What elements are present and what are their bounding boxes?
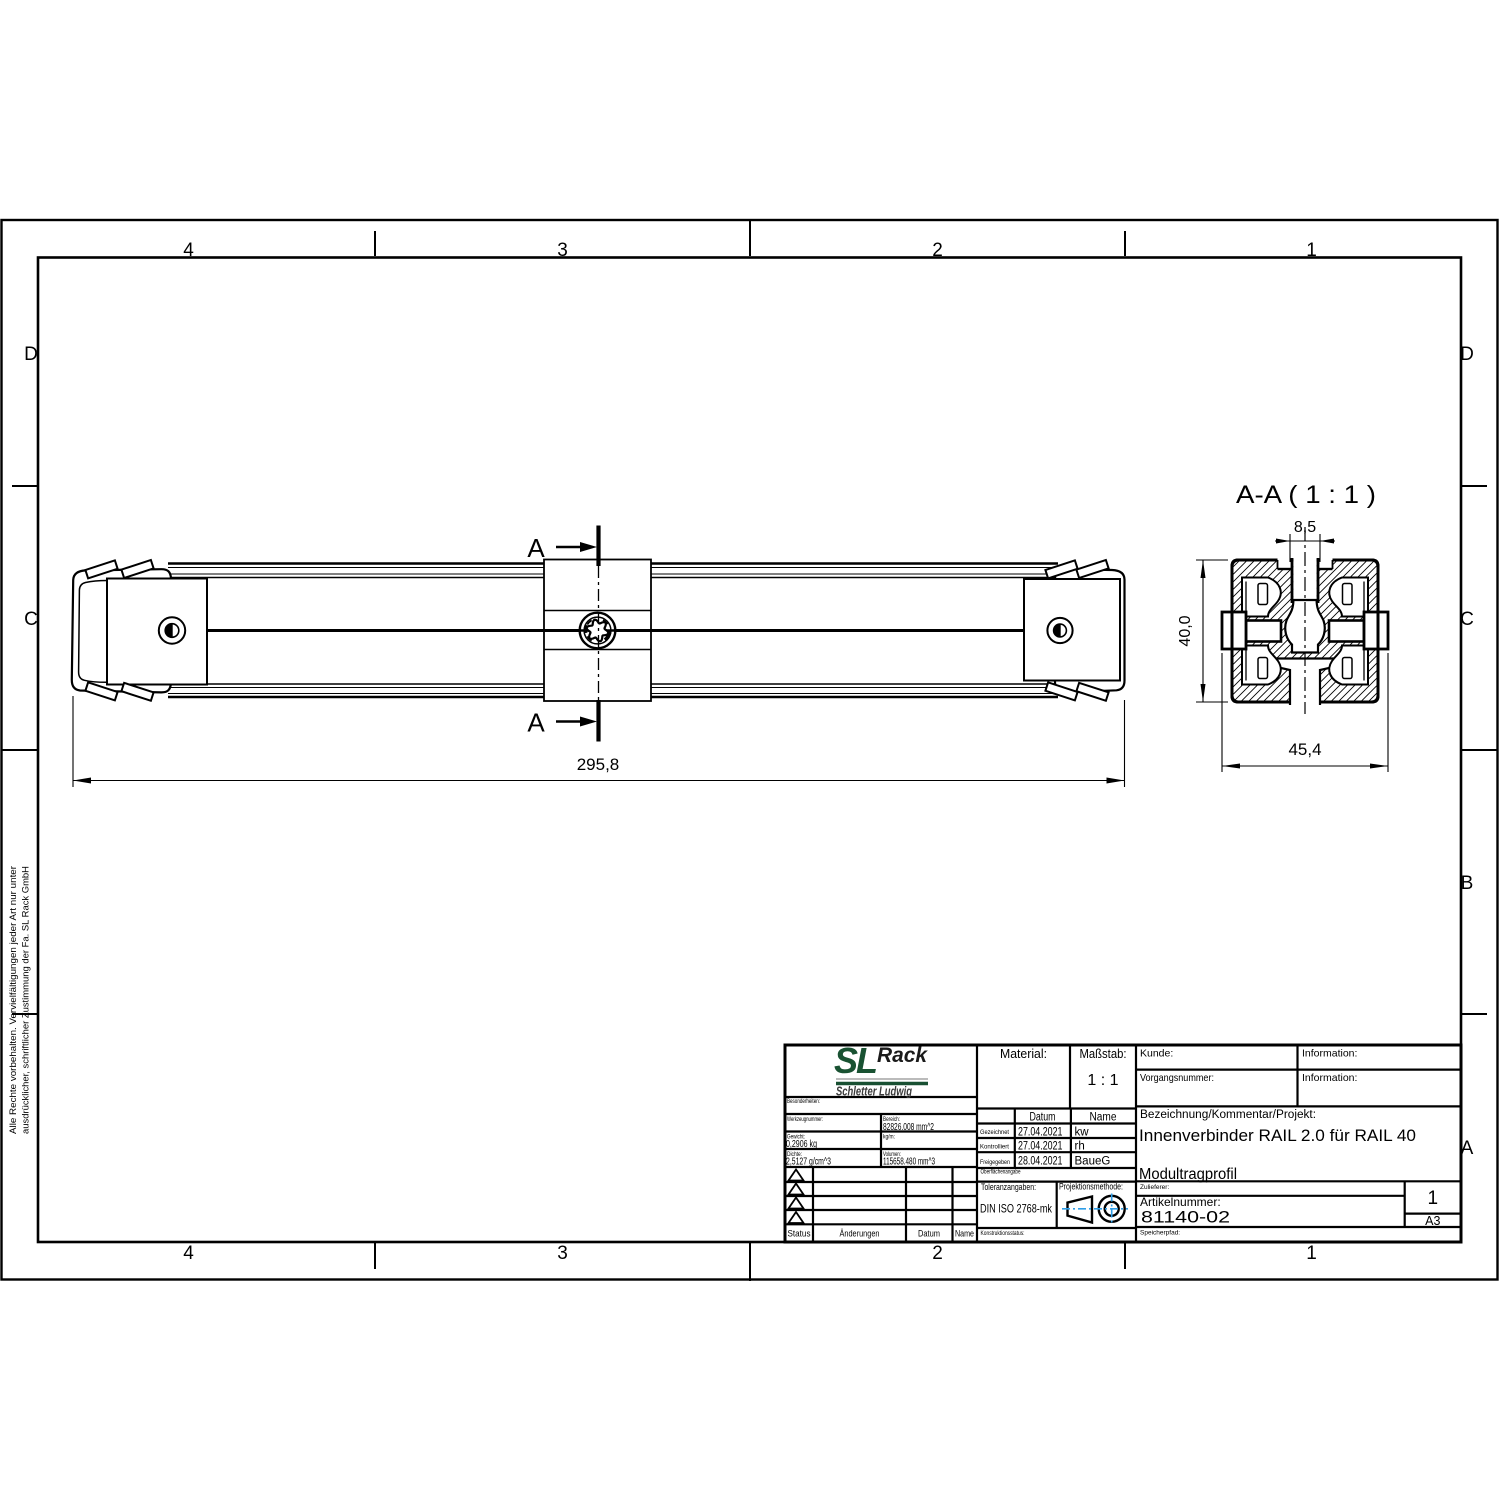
svg-text:Werkzeugnummer:: Werkzeugnummer: <box>787 1116 823 1123</box>
svg-text:27.04.2021: 27.04.2021 <box>1018 1127 1063 1139</box>
svg-text:Freigegeben: Freigegeben <box>980 1159 1010 1166</box>
svg-text:1 : 1: 1 : 1 <box>1087 1072 1118 1089</box>
svg-text:DIN ISO 2768-mk: DIN ISO 2768-mk <box>980 1202 1053 1216</box>
svg-text:3: 3 <box>557 1243 568 1264</box>
svg-text:Speicherpfad:: Speicherpfad: <box>1140 1230 1180 1237</box>
svg-text:2: 2 <box>932 1243 943 1264</box>
svg-text:Oberflächenangabe: Oberflächenangabe <box>981 1169 1021 1176</box>
svg-text:Toleranzangaben:: Toleranzangaben: <box>981 1182 1036 1193</box>
svg-text:4: 4 <box>183 1243 194 1264</box>
svg-text:0,2906 kg: 0,2906 kg <box>786 1139 817 1150</box>
svg-text:Name: Name <box>1090 1112 1117 1124</box>
svg-text:Bezeichnung/Kommentar/Projekt:: Bezeichnung/Kommentar/Projekt: <box>1140 1109 1316 1121</box>
svg-text:2,5127 g/cm^3: 2,5127 g/cm^3 <box>786 1157 831 1168</box>
svg-text:Maßstab:: Maßstab: <box>1080 1047 1127 1061</box>
svg-text:ausdrücklicher, schriftlicher: ausdrücklicher, schriftlicher Zustimmung… <box>21 866 32 1134</box>
svg-text:rh: rh <box>1075 1141 1085 1153</box>
svg-text:BaueG: BaueG <box>1075 1156 1111 1168</box>
svg-text:Besonderheiten:: Besonderheiten: <box>787 1098 820 1105</box>
svg-text:Projektionsmethode:: Projektionsmethode: <box>1059 1182 1123 1192</box>
svg-text:Datum: Datum <box>918 1229 940 1240</box>
svg-text:C: C <box>1460 609 1474 630</box>
svg-text:Schletter Ludwig: Schletter Ludwig <box>836 1084 912 1099</box>
svg-text:A: A <box>527 708 545 738</box>
svg-text:Rack: Rack <box>877 1044 928 1067</box>
svg-text:40,0: 40,0 <box>1177 615 1194 646</box>
svg-text:kg/m:: kg/m: <box>883 1134 895 1141</box>
svg-text:D: D <box>24 344 38 365</box>
svg-text:SL: SL <box>834 1040 876 1081</box>
svg-text:A-A ( 1 : 1 ): A-A ( 1 : 1 ) <box>1236 481 1376 509</box>
svg-text:A3: A3 <box>1425 1214 1440 1228</box>
svg-text:1: 1 <box>1306 1243 1317 1264</box>
svg-text:C: C <box>24 609 38 630</box>
svg-text:45,4: 45,4 <box>1288 740 1321 759</box>
svg-text:A: A <box>527 533 545 563</box>
svg-text:82826.008 mm^2: 82826.008 mm^2 <box>883 1122 934 1133</box>
svg-text:3: 3 <box>557 240 568 261</box>
svg-text:A: A <box>1461 1138 1474 1159</box>
svg-text:28.04.2021: 28.04.2021 <box>1018 1156 1063 1168</box>
svg-text:8,5: 8,5 <box>1294 519 1316 536</box>
svg-text:115658.480 mm^3: 115658.480 mm^3 <box>883 1157 935 1168</box>
svg-text:D: D <box>1460 344 1474 365</box>
svg-text:Information:: Information: <box>1302 1072 1357 1084</box>
svg-text:Innenverbinder RAIL 2.0 für RA: Innenverbinder RAIL 2.0 für RAIL 40 <box>1139 1126 1416 1145</box>
svg-text:Kontrolliert: Kontrolliert <box>980 1144 1009 1151</box>
svg-text:kw: kw <box>1075 1127 1090 1139</box>
svg-text:Vorgangsnummer:: Vorgangsnummer: <box>1140 1072 1214 1084</box>
svg-text:2: 2 <box>932 240 943 261</box>
svg-text:295,8: 295,8 <box>577 755 620 774</box>
svg-text:Konstruktionsstatus:: Konstruktionsstatus: <box>981 1230 1025 1237</box>
svg-text:Status: Status <box>788 1229 811 1240</box>
svg-text:Material:: Material: <box>1000 1047 1047 1061</box>
svg-text:27.04.2021: 27.04.2021 <box>1018 1141 1063 1153</box>
svg-text:Name: Name <box>955 1229 974 1240</box>
svg-text:Kunde:: Kunde: <box>1140 1048 1173 1060</box>
svg-text:4: 4 <box>183 240 194 261</box>
svg-text:Alle Rechte vorbehalten. Vervi: Alle Rechte vorbehalten. Vervielfältigun… <box>8 866 19 1134</box>
svg-text:Datum: Datum <box>1030 1112 1056 1124</box>
svg-text:Zulieferer:: Zulieferer: <box>1140 1184 1169 1191</box>
svg-text:81140-02: 81140-02 <box>1141 1208 1230 1227</box>
svg-text:Gezeichnet: Gezeichnet <box>980 1129 1009 1136</box>
svg-text:1: 1 <box>1306 240 1317 261</box>
svg-text:Änderungen: Änderungen <box>840 1229 880 1240</box>
svg-text:Modultragprofil: Modultragprofil <box>1139 1166 1237 1183</box>
svg-text:B: B <box>1461 873 1474 894</box>
svg-text:1: 1 <box>1428 1188 1439 1209</box>
svg-text:Information:: Information: <box>1302 1048 1357 1060</box>
